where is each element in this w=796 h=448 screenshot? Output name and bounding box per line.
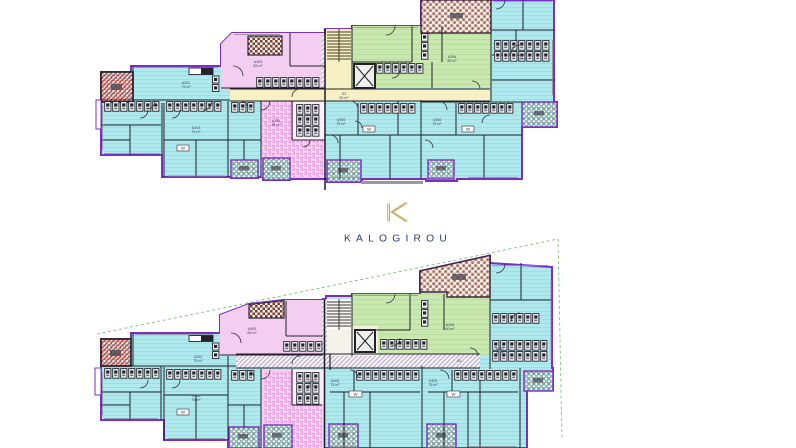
svg-text:45 m²: 45 m² — [307, 384, 317, 388]
svg-text:75 m²: 75 m² — [181, 85, 191, 89]
svg-text:75 m²: 75 m² — [336, 122, 346, 126]
svg-text:45 m²: 45 m² — [271, 123, 281, 127]
svg-text:W: W — [466, 127, 470, 132]
svg-text:W: W — [181, 410, 185, 415]
svg-text:W: W — [354, 392, 358, 397]
svg-text:55 m²: 55 m² — [339, 96, 349, 100]
svg-text:80 m²: 80 m² — [445, 327, 455, 331]
svg-text:65 m²: 65 m² — [247, 331, 257, 335]
svg-text:S4: S4 — [457, 359, 461, 363]
svg-text:75 m²: 75 m² — [191, 398, 201, 402]
svg-text:W: W — [181, 146, 185, 151]
svg-text:75 m²: 75 m² — [330, 383, 340, 387]
svg-text:W: W — [367, 127, 371, 132]
svg-text:70 m²: 70 m² — [517, 57, 527, 61]
svg-text:KALOGIROU: KALOGIROU — [344, 234, 452, 245]
svg-text:W: W — [452, 392, 456, 397]
svg-text:75 m²: 75 m² — [193, 359, 203, 363]
svg-text:75 m²: 75 m² — [432, 122, 442, 126]
svg-text:55 m²: 55 m² — [253, 64, 263, 68]
svg-text:75 m²: 75 m² — [428, 383, 438, 387]
svg-text:75 m²: 75 m² — [495, 351, 505, 355]
svg-text:80 m²: 80 m² — [447, 59, 457, 63]
svg-text:75 m²: 75 m² — [191, 130, 201, 134]
